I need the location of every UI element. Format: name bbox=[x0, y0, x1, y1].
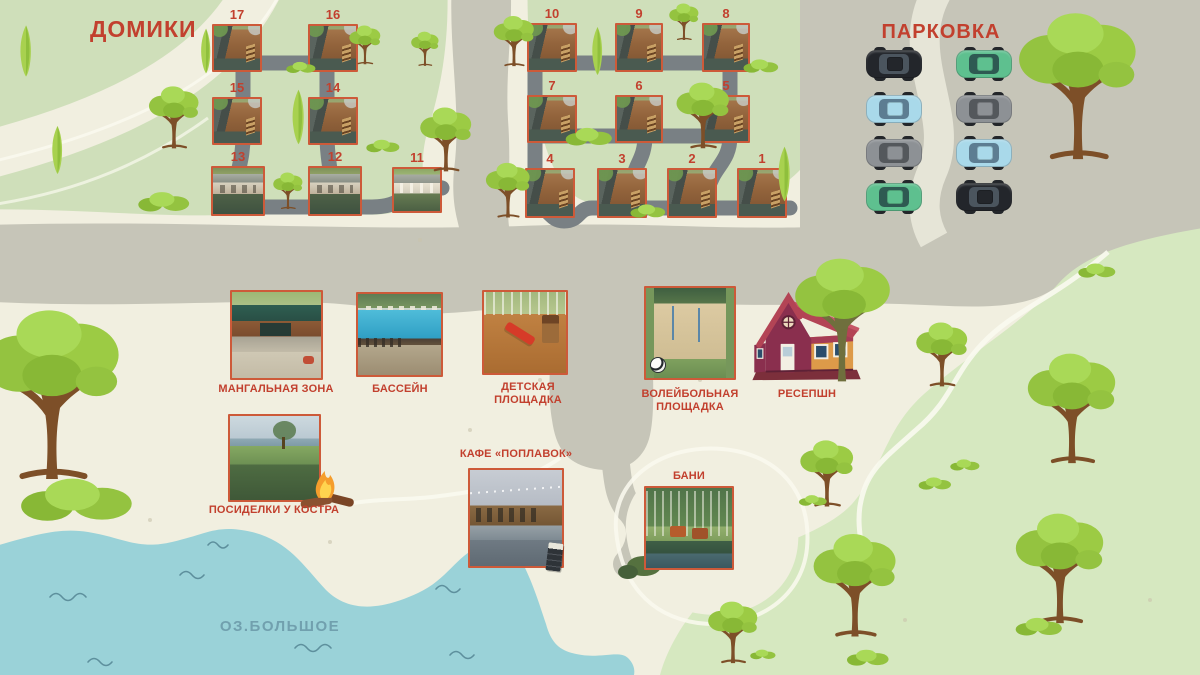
cabin-12: 12 bbox=[308, 166, 362, 216]
cabin-photo-15[interactable] bbox=[212, 97, 262, 145]
cabin-photo-5[interactable] bbox=[702, 95, 750, 143]
campfire-icon bbox=[299, 462, 357, 510]
parking-car-gray bbox=[956, 95, 1012, 123]
reception-label: РЕСЕПШН bbox=[747, 388, 867, 401]
cabin-number: 14 bbox=[308, 80, 358, 95]
cabin-3: 3 bbox=[597, 168, 647, 218]
cabin-8: 8 bbox=[702, 23, 750, 72]
playground-photo[interactable] bbox=[482, 290, 568, 375]
pool-photo[interactable] bbox=[356, 292, 443, 377]
cabin-photo-13[interactable] bbox=[211, 166, 265, 216]
cabin-photo-3[interactable] bbox=[597, 168, 647, 218]
cabin-number: 4 bbox=[525, 151, 575, 166]
volleyball-label: ВОЛЕЙБОЛЬНАЯ ПЛОЩАДКА bbox=[635, 388, 745, 414]
cafe-label: КАФЕ «ПОПЛАВОК» bbox=[436, 448, 596, 461]
cabin-photo-6[interactable] bbox=[615, 95, 663, 143]
cabin-17: 17 bbox=[212, 24, 262, 72]
cabin-photo-14[interactable] bbox=[308, 97, 358, 145]
cabin-number: 17 bbox=[212, 7, 262, 22]
cabin-9: 9 bbox=[615, 23, 663, 72]
cabin-photo-1[interactable] bbox=[737, 168, 787, 218]
cabin-2: 2 bbox=[667, 168, 717, 218]
cabin-photo-10[interactable] bbox=[527, 23, 577, 72]
cabin-photo-8[interactable] bbox=[702, 23, 750, 72]
cabin-10: 10 bbox=[527, 23, 577, 72]
cabin-photo-11[interactable] bbox=[392, 167, 442, 213]
cabin-photo-2[interactable] bbox=[667, 168, 717, 218]
playground-tower bbox=[542, 315, 559, 343]
bbq-zone-photo[interactable] bbox=[230, 290, 323, 380]
cabins-title: ДОМИКИ bbox=[90, 16, 197, 43]
cabin-number: 5 bbox=[702, 78, 750, 93]
parking-car-black bbox=[956, 183, 1012, 211]
cabin-11: 11 bbox=[392, 167, 442, 213]
cabin-7: 7 bbox=[527, 95, 577, 143]
cabin-16: 16 bbox=[308, 24, 358, 72]
cabin-number: 6 bbox=[615, 78, 663, 93]
cabin-number: 11 bbox=[392, 150, 442, 165]
parking-car-gray bbox=[866, 139, 922, 167]
terrain-layer bbox=[0, 0, 1200, 675]
volleyball-photo[interactable] bbox=[644, 286, 736, 380]
banya-label: БАНИ bbox=[639, 470, 739, 483]
campfire-label: ПОСИДЕЛКИ У КОСТРА bbox=[194, 504, 354, 517]
cabin-number: 15 bbox=[212, 80, 262, 95]
reception-house[interactable] bbox=[750, 288, 865, 383]
cabin-number: 8 bbox=[702, 6, 750, 21]
cabin-number: 16 bbox=[308, 7, 358, 22]
cabin-photo-16[interactable] bbox=[308, 24, 358, 72]
cabin-photo-7[interactable] bbox=[527, 95, 577, 143]
resort-map: ДОМИКИ ПАРКОВКА ОЗ.БОЛЬШОЕ 17 16 15 14 1… bbox=[0, 0, 1200, 675]
cabin-number: 9 bbox=[615, 6, 663, 21]
cabin-number: 7 bbox=[527, 78, 577, 93]
parking-car-green bbox=[956, 50, 1012, 78]
north-road bbox=[451, 0, 511, 232]
parking-title: ПАРКОВКА bbox=[876, 21, 1006, 44]
playground-label: ДЕТСКАЯ ПЛОЩАДКА bbox=[486, 381, 570, 407]
cabin-photo-4[interactable] bbox=[525, 168, 575, 218]
cabin-number: 1 bbox=[737, 151, 787, 166]
cabin-6: 6 bbox=[615, 95, 663, 143]
cabin-15: 15 bbox=[212, 97, 262, 145]
cabin-photo-9[interactable] bbox=[615, 23, 663, 72]
parking-car-black bbox=[866, 50, 922, 78]
cabin-5: 5 bbox=[702, 95, 750, 143]
parking-car-blue bbox=[866, 95, 922, 123]
cabin-4: 4 bbox=[525, 168, 575, 218]
cabin-number: 3 bbox=[597, 151, 647, 166]
cabin-number: 13 bbox=[211, 149, 265, 164]
parking-car-green bbox=[866, 183, 922, 211]
cabin-number: 12 bbox=[308, 149, 362, 164]
lake-label: ОЗ.БОЛЬШОЕ bbox=[200, 618, 360, 635]
cabin-number: 10 bbox=[527, 6, 577, 21]
cabin-13: 13 bbox=[211, 166, 265, 216]
cabin-1: 1 bbox=[737, 168, 787, 218]
banya-photo[interactable] bbox=[644, 486, 734, 570]
cabin-number: 2 bbox=[667, 151, 717, 166]
cabin-photo-12[interactable] bbox=[308, 166, 362, 216]
volleyball-icon bbox=[650, 357, 666, 373]
pool-label: БАССЕЙН bbox=[320, 383, 480, 396]
cabin-14: 14 bbox=[308, 97, 358, 145]
cabin-photo-17[interactable] bbox=[212, 24, 262, 72]
parking-car-blue bbox=[956, 139, 1012, 167]
